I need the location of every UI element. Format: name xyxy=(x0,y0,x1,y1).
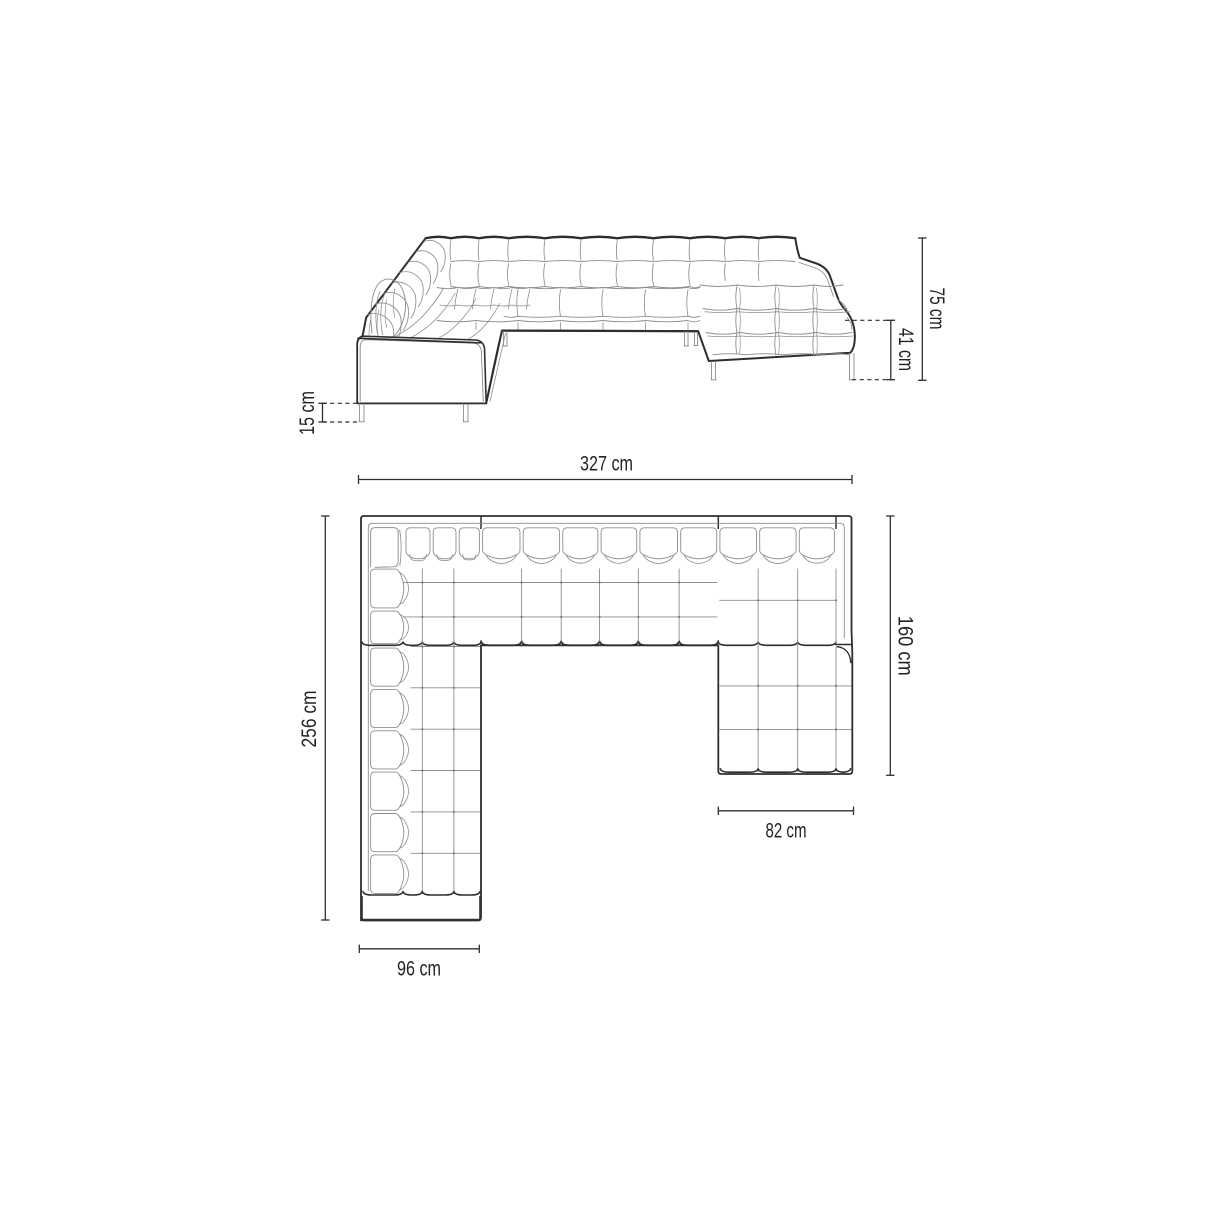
svg-text:15 cm: 15 cm xyxy=(296,391,319,435)
svg-text:160 cm: 160 cm xyxy=(894,616,917,676)
svg-text:75 cm: 75 cm xyxy=(925,288,948,330)
svg-text:82 cm: 82 cm xyxy=(766,820,807,843)
svg-text:96 cm: 96 cm xyxy=(397,958,441,981)
svg-text:327 cm: 327 cm xyxy=(580,453,633,476)
svg-text:41 cm: 41 cm xyxy=(894,328,917,371)
svg-text:256 cm: 256 cm xyxy=(298,691,321,748)
